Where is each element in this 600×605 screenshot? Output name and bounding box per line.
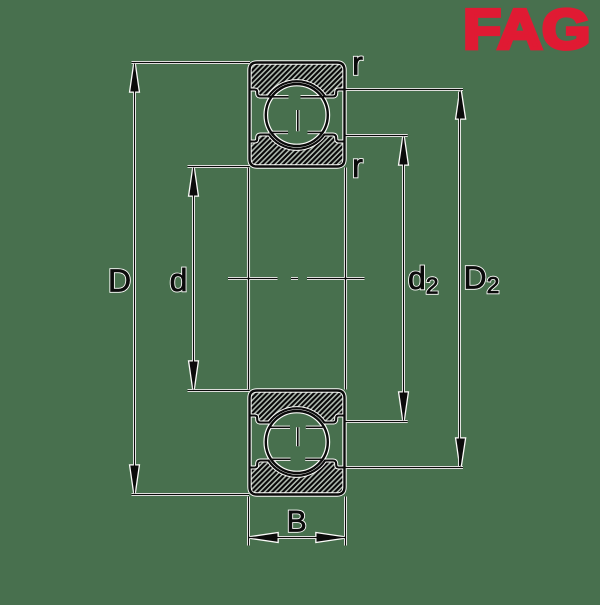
svg-text:D: D: [108, 263, 131, 299]
svg-text:d: d: [170, 262, 188, 298]
svg-text:r: r: [352, 45, 363, 82]
svg-text:r: r: [352, 147, 363, 184]
svg-text:FAG: FAG: [463, 0, 590, 61]
svg-text:B: B: [287, 506, 307, 539]
